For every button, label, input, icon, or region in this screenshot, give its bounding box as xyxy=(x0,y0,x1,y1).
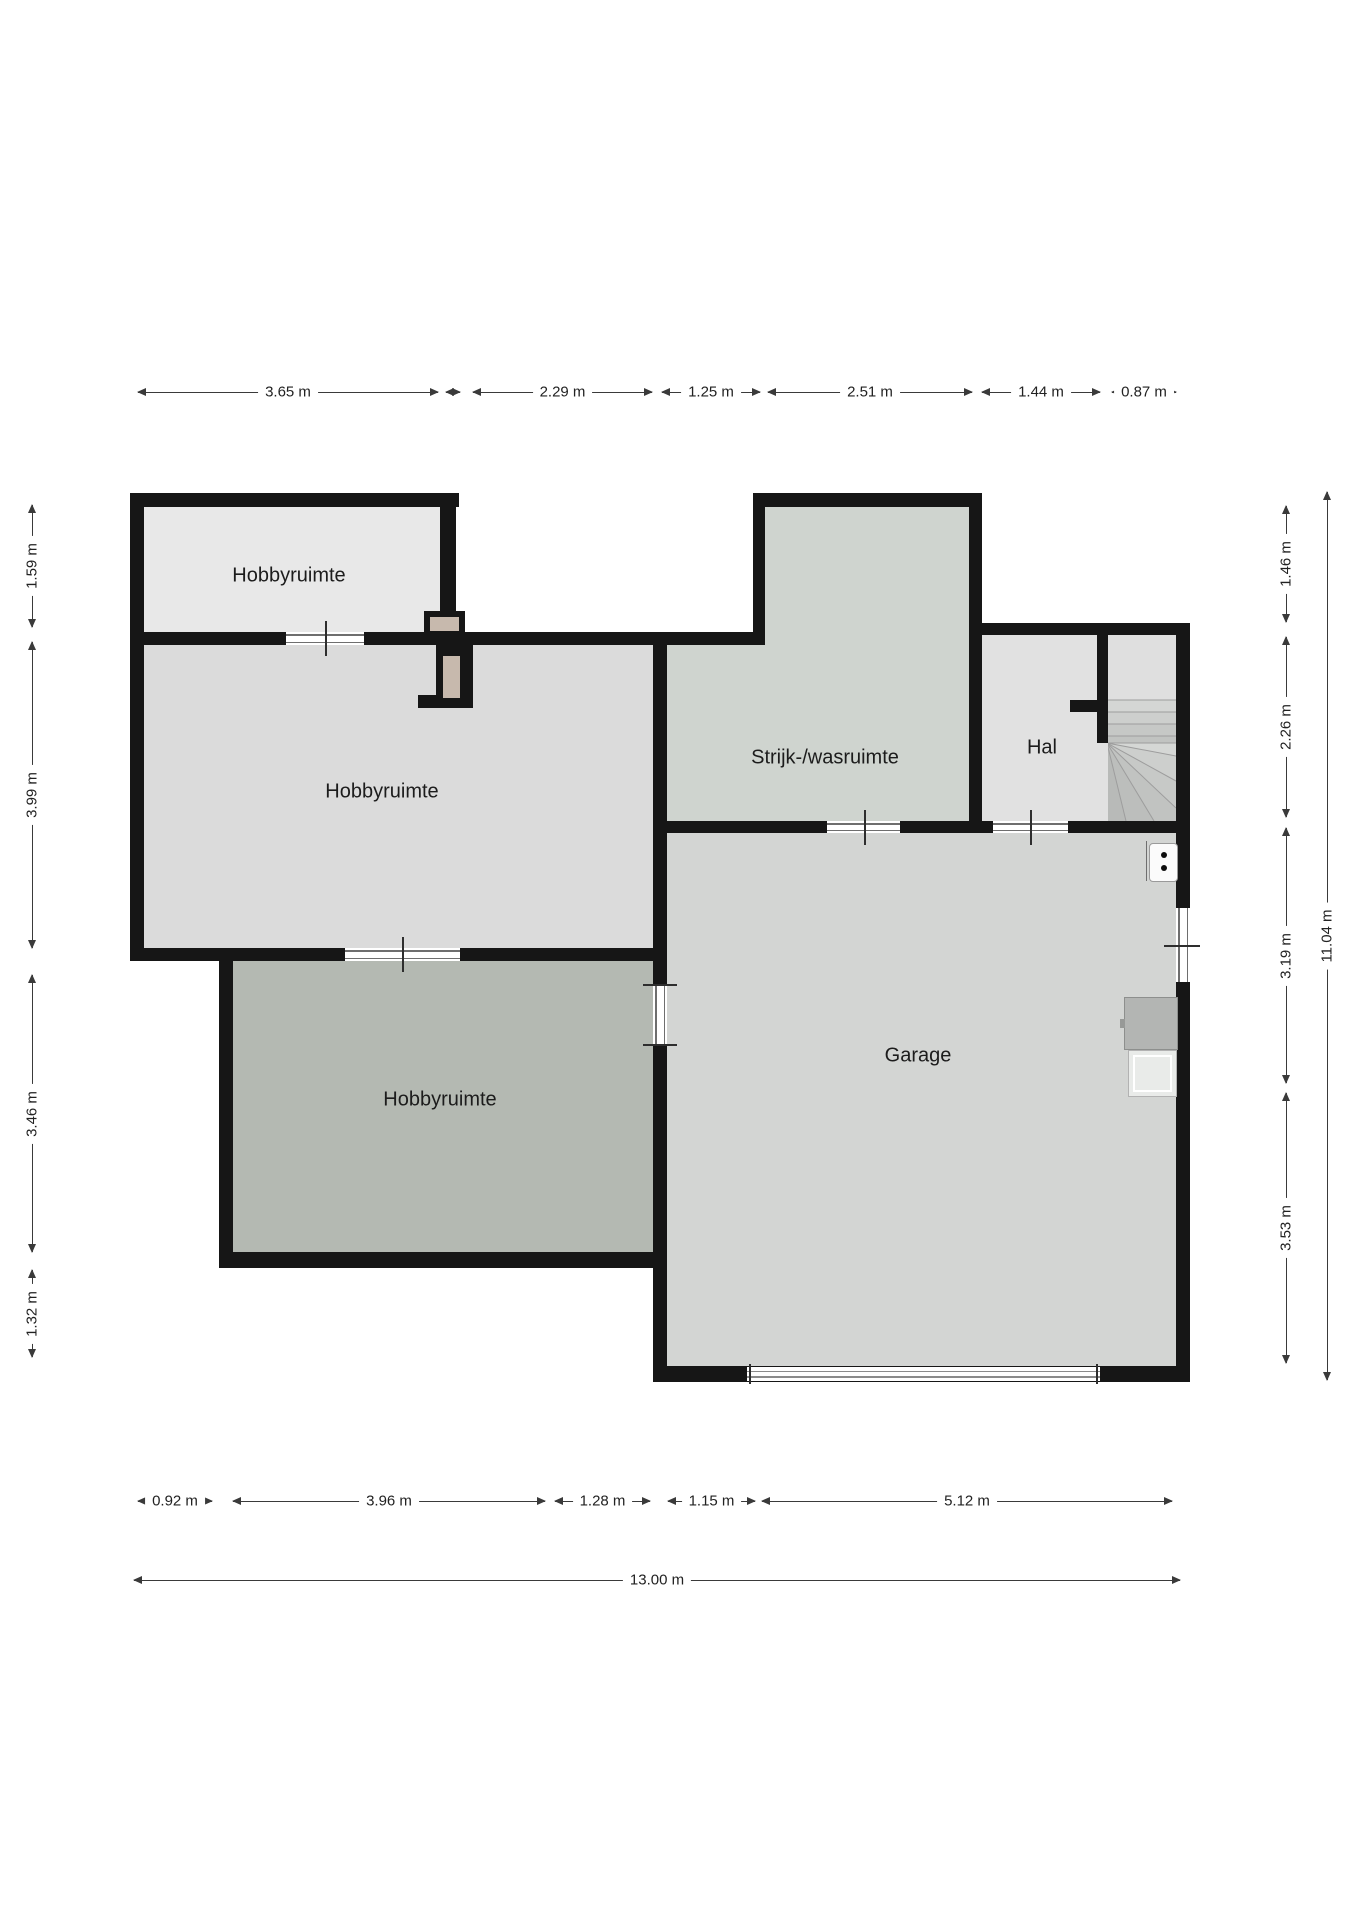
dimension-label: 1.59 m xyxy=(23,536,40,596)
room-label-hobbyruimte-2: Hobbyruimte xyxy=(325,781,438,804)
dimension-arrow xyxy=(1323,1372,1331,1381)
dimension-top-6: 0.87 m xyxy=(1112,392,1176,393)
dimension-arrow xyxy=(661,388,670,396)
dimension-arrow xyxy=(1323,491,1331,500)
dimension-arrow xyxy=(133,1576,142,1584)
dimension-right_inner-3: 3.53 m xyxy=(1286,1093,1287,1363)
wall-garage-top xyxy=(653,821,1188,833)
appliance-sink-basin xyxy=(1133,1055,1172,1092)
dimension-top-1 xyxy=(446,392,460,393)
dimension-top-0: 3.65 m xyxy=(138,392,438,393)
meter-dot-2 xyxy=(1161,865,1167,871)
dimension-bottom_total-0: 13.00 m xyxy=(134,1580,1180,1581)
dimension-arrow xyxy=(1282,1092,1290,1101)
dimension-right_outer-0: 11.04 m xyxy=(1327,492,1328,1380)
dimension-label: 1.44 m xyxy=(1011,383,1071,400)
dimension-arrow xyxy=(767,388,776,396)
dimension-arrow xyxy=(1282,636,1290,645)
room-label-strijk-wasruimte: Strijk-/wasruimte xyxy=(751,747,899,770)
dimension-arrow xyxy=(752,388,761,396)
dimension-left-3: 1.32 m xyxy=(32,1270,33,1357)
dimension-right_inner-2: 3.19 m xyxy=(1286,828,1287,1083)
dimension-arrow xyxy=(667,1497,676,1505)
wall-bump-top xyxy=(753,493,982,507)
wall-strijk-right xyxy=(969,493,982,821)
dimension-arrow xyxy=(642,1497,651,1505)
dimension-arrow xyxy=(644,388,653,396)
dimension-label: 5.12 m xyxy=(937,1492,997,1509)
floor-hal-extension xyxy=(1097,743,1108,821)
dimension-label: 1.32 m xyxy=(23,1284,40,1344)
floor-strijk-wasruimte-bump xyxy=(765,507,969,645)
window-garage-right-tick xyxy=(1164,945,1200,947)
dimension-left-0: 1.59 m xyxy=(32,505,33,627)
dimension-arrow xyxy=(204,1497,213,1505)
wall-garage-left-upper xyxy=(653,633,667,985)
dimension-arrow xyxy=(1282,1355,1290,1364)
dimension-label: 0.87 m xyxy=(1114,383,1174,400)
dimension-top-5: 1.44 m xyxy=(982,392,1100,393)
staircase xyxy=(1108,635,1176,821)
wall-bump-left xyxy=(753,493,765,645)
dimension-arrow xyxy=(1282,809,1290,818)
dimension-arrow xyxy=(537,1497,546,1505)
dimension-label: 2.29 m xyxy=(533,383,593,400)
dimension-left-1: 3.99 m xyxy=(32,642,33,948)
wall-hal-top xyxy=(969,623,1188,635)
appliance-sink xyxy=(1128,1050,1177,1097)
chimney-upper-fill xyxy=(430,617,459,631)
dimension-arrow xyxy=(1282,1075,1290,1084)
room-label-garage: Garage xyxy=(885,1045,952,1068)
dimension-arrow xyxy=(1172,1576,1181,1584)
wall-top-hobby1 xyxy=(130,493,459,507)
wall-hal-stairs-divider xyxy=(1097,635,1108,743)
dimension-left-2: 3.46 m xyxy=(32,975,33,1252)
dimension-arrow xyxy=(28,619,36,628)
wall-hal-stub xyxy=(1070,700,1097,712)
dimension-label: 13.00 m xyxy=(623,1571,691,1588)
dimension-arrow xyxy=(28,940,36,949)
dimension-arrow xyxy=(28,641,36,650)
wall-hobby3-left xyxy=(219,948,233,1268)
room-label-hal: Hal xyxy=(1027,737,1057,760)
dimension-top-3: 1.25 m xyxy=(662,392,760,393)
dimension-arrow xyxy=(28,1349,36,1358)
dimension-label: 3.53 m xyxy=(1277,1198,1294,1258)
floor-strijk-wasruimte xyxy=(667,645,969,821)
garage-door-tick-right xyxy=(1096,1364,1098,1384)
window-hobby2-tick xyxy=(402,937,404,972)
dimension-label: 0.92 m xyxy=(145,1492,205,1509)
dimension-arrow xyxy=(1282,827,1290,836)
window-hal-garage-tick xyxy=(1030,810,1032,845)
dimension-arrow xyxy=(964,388,973,396)
floorplan-canvas: HobbyruimteHobbyruimteHobbyruimteStrijk-… xyxy=(0,0,1358,1920)
dimension-label: 2.26 m xyxy=(1277,697,1294,757)
dimension-arrow xyxy=(554,1497,563,1505)
dimension-label: 3.99 m xyxy=(23,765,40,825)
dimension-label: 3.19 m xyxy=(1277,926,1294,986)
dimension-top-4: 2.51 m xyxy=(768,392,972,393)
wall-right-outer-lower xyxy=(1176,982,1190,1382)
dimension-arrow xyxy=(1164,1497,1173,1505)
dimension-arrow xyxy=(981,388,990,396)
dimension-label: 11.04 m xyxy=(1318,902,1335,969)
dimension-bottom_segments-1: 3.96 m xyxy=(233,1501,545,1502)
wall-garage-left-lower xyxy=(653,1045,667,1382)
garage-door xyxy=(747,1367,1100,1381)
dimension-arrow xyxy=(28,974,36,983)
dimension-label: 1.15 m xyxy=(682,1492,742,1509)
meter-box-line xyxy=(1146,841,1147,881)
wall-hobby3-bottom xyxy=(219,1252,667,1268)
opening-hobby3-garage xyxy=(653,985,667,1045)
appliance-worktop-knob xyxy=(1120,1019,1125,1028)
dimension-label: 1.25 m xyxy=(681,383,741,400)
dimension-arrow xyxy=(1282,505,1290,514)
dimension-arrow xyxy=(747,1497,756,1505)
room-label-hobbyruimte-1: Hobbyruimte xyxy=(232,565,345,588)
dimension-right_inner-0: 1.46 m xyxy=(1286,506,1287,622)
dimension-bottom_segments-0: 0.92 m xyxy=(138,1501,212,1502)
wall-right-outer-upper xyxy=(1176,623,1190,908)
floor-hal xyxy=(982,635,1097,821)
dimension-label: 3.46 m xyxy=(23,1084,40,1144)
dimension-arrow xyxy=(28,1269,36,1278)
dimension-arrow xyxy=(28,1244,36,1253)
dimension-arrow xyxy=(1282,614,1290,623)
dimension-arrow xyxy=(452,388,461,396)
dimension-arrow xyxy=(28,504,36,513)
window-strijk-garage-tick xyxy=(864,810,866,845)
chimney-lower-fill xyxy=(443,656,460,698)
meter-dot-1 xyxy=(1161,852,1167,858)
wall-left-outer xyxy=(130,493,144,961)
meter-box xyxy=(1149,843,1178,882)
garage-door-tick-left xyxy=(749,1364,751,1384)
wall-band-hobby1-bottom xyxy=(130,632,765,645)
appliance-worktop xyxy=(1124,997,1178,1050)
dimension-bottom_segments-3: 1.15 m xyxy=(668,1501,755,1502)
dimension-arrow xyxy=(1092,388,1101,396)
dimension-bottom_segments-2: 1.28 m xyxy=(555,1501,650,1502)
dimension-bottom_segments-4: 5.12 m xyxy=(762,1501,1172,1502)
dimension-label: 3.96 m xyxy=(359,1492,419,1509)
dimension-label: 1.46 m xyxy=(1277,534,1294,594)
dimension-label: 1.28 m xyxy=(573,1492,633,1509)
dimension-arrow xyxy=(232,1497,241,1505)
room-label-hobbyruimte-3: Hobbyruimte xyxy=(383,1089,496,1112)
dimension-top-2: 2.29 m xyxy=(473,392,652,393)
dimension-arrow xyxy=(472,388,481,396)
dimension-arrow xyxy=(137,388,146,396)
wall-hobby1-right xyxy=(440,493,456,613)
floor-garage xyxy=(667,833,1176,1366)
dimension-label: 2.51 m xyxy=(840,383,900,400)
dimension-arrow xyxy=(761,1497,770,1505)
dimension-label: 3.65 m xyxy=(258,383,318,400)
opening-hobby3-garage-tick-bottom xyxy=(643,1044,677,1046)
window-hobby1-tick xyxy=(325,621,327,656)
dimension-right_inner-1: 2.26 m xyxy=(1286,637,1287,817)
chimney-stub xyxy=(418,695,438,708)
dimension-arrow xyxy=(430,388,439,396)
opening-hobby3-garage-tick-top xyxy=(643,984,677,986)
